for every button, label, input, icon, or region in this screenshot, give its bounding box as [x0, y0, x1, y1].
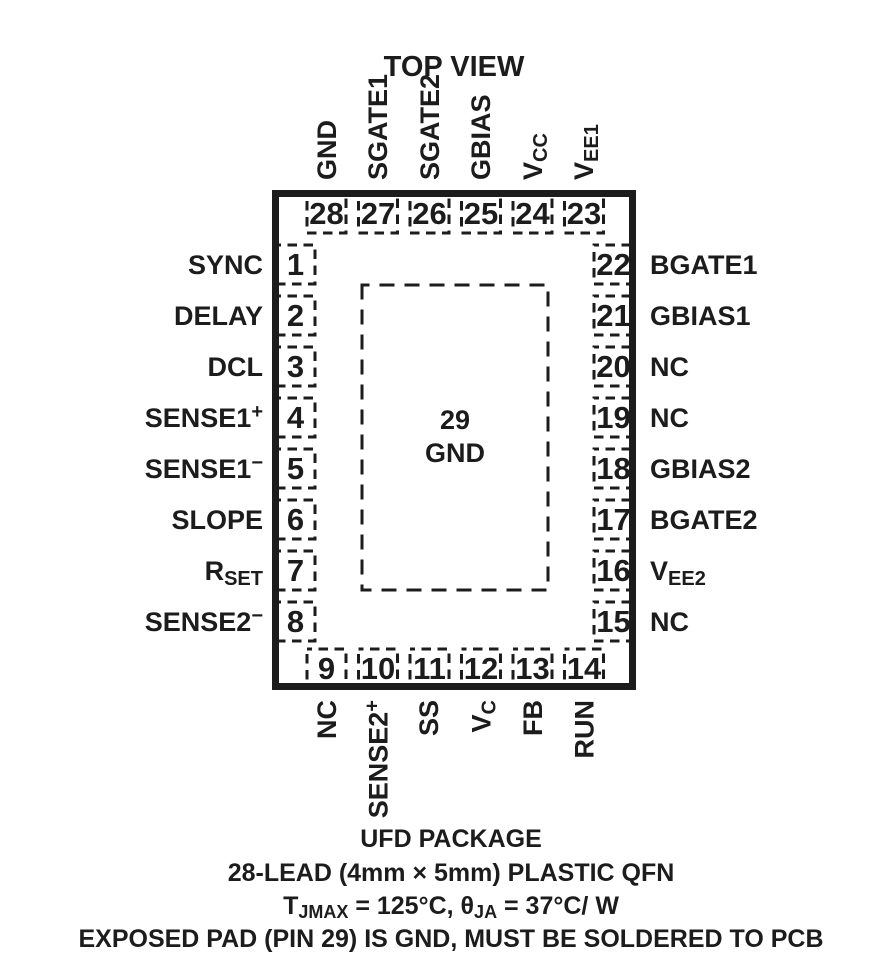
pin-label-sync: SYNC	[188, 250, 263, 280]
footer-exposed-pad-note: EXPOSED PAD (PIN 29) IS GND, MUST BE SOL…	[78, 924, 823, 954]
footer-package-desc: 28-LEAD (4mm × 5mm) PLASTIC QFN	[228, 858, 675, 888]
pin-label-vee2: VEE2	[650, 556, 706, 586]
pin-number-8: 8	[287, 604, 304, 640]
pin-label-sgate1: SGATE1	[364, 74, 392, 180]
pin-number-12: 12	[464, 651, 498, 687]
pin-label-sense2-minus: SENSE2−	[145, 607, 263, 637]
pin-label-run: RUN	[570, 700, 598, 759]
pin-label-vee1: VEE1	[570, 124, 598, 180]
pin-label-nc-15: NC	[650, 607, 689, 637]
pin-label-gbias2: GBIAS2	[650, 454, 751, 484]
pin-label-delay: DELAY	[174, 301, 263, 331]
exposed-pad-name: GND	[425, 437, 485, 470]
pin-number-25: 25	[464, 196, 498, 232]
pin-label-fb: FB	[519, 700, 547, 736]
footer-package-name: UFD PACKAGE	[360, 824, 541, 854]
pinout-diagram: TOP VIEW 28 27 26 25 24 23 1 2 3 4 5 6 7…	[0, 0, 887, 980]
pin-number-19: 19	[596, 400, 630, 436]
pin-number-13: 13	[515, 651, 549, 687]
pin-number-18: 18	[596, 451, 630, 487]
pin-label-bgate2: BGATE2	[650, 505, 758, 535]
pin-label-gbias1: GBIAS1	[650, 301, 751, 331]
pin-number-14: 14	[567, 651, 601, 687]
exposed-pad-label: 29 GND	[425, 404, 485, 470]
pin-label-sense1-minus: SENSE1−	[145, 454, 263, 484]
pin-label-nc-20: NC	[650, 352, 689, 382]
pin-number-11: 11	[413, 651, 446, 687]
pin-label-bgate1: BGATE1	[650, 250, 758, 280]
pin-number-2: 2	[287, 298, 304, 334]
pin-label-gnd: GND	[313, 120, 341, 180]
pin-number-22: 22	[596, 247, 630, 283]
pin-label-rset: RSET	[205, 556, 263, 586]
pin-number-26: 26	[412, 196, 446, 232]
pin-number-3: 3	[287, 349, 304, 385]
pin-label-nc-19: NC	[650, 403, 689, 433]
pin-number-9: 9	[318, 651, 335, 687]
pin-label-nc-9: NC	[313, 700, 341, 739]
pin-number-4: 4	[287, 400, 304, 436]
pin-label-gbias: GBIAS	[467, 94, 495, 180]
pin-number-17: 17	[596, 502, 630, 538]
pin-number-28: 28	[309, 196, 343, 232]
pin-number-24: 24	[515, 196, 549, 232]
pin-number-23: 23	[567, 196, 601, 232]
pin-label-sense2-plus: SENSE2+	[364, 700, 392, 818]
pin-number-15: 15	[596, 604, 630, 640]
pin-number-21: 21	[596, 298, 630, 334]
pin-label-ss: SS	[416, 700, 444, 736]
page-title: TOP VIEW	[384, 50, 525, 84]
pin-number-7: 7	[287, 553, 304, 589]
pin-label-sgate2: SGATE2	[416, 74, 444, 180]
pin-label-slope: SLOPE	[171, 505, 263, 535]
footer-thermal-spec: TJMAX = 125°C, θJA = 37°C/ W	[283, 891, 619, 921]
exposed-pad-number: 29	[425, 404, 485, 437]
pin-number-6: 6	[287, 502, 304, 538]
pin-label-sense1-plus: SENSE1+	[145, 403, 263, 433]
pin-label-vc: VC	[467, 700, 495, 732]
pin-label-dcl: DCL	[208, 352, 264, 382]
pin-number-1: 1	[287, 247, 304, 283]
pin-number-27: 27	[361, 196, 395, 232]
pin-label-vcc: VCC	[519, 133, 547, 180]
pin-number-16: 16	[596, 553, 630, 589]
pin-number-5: 5	[287, 451, 304, 487]
pin-number-20: 20	[596, 349, 630, 385]
pin-number-10: 10	[361, 651, 395, 687]
